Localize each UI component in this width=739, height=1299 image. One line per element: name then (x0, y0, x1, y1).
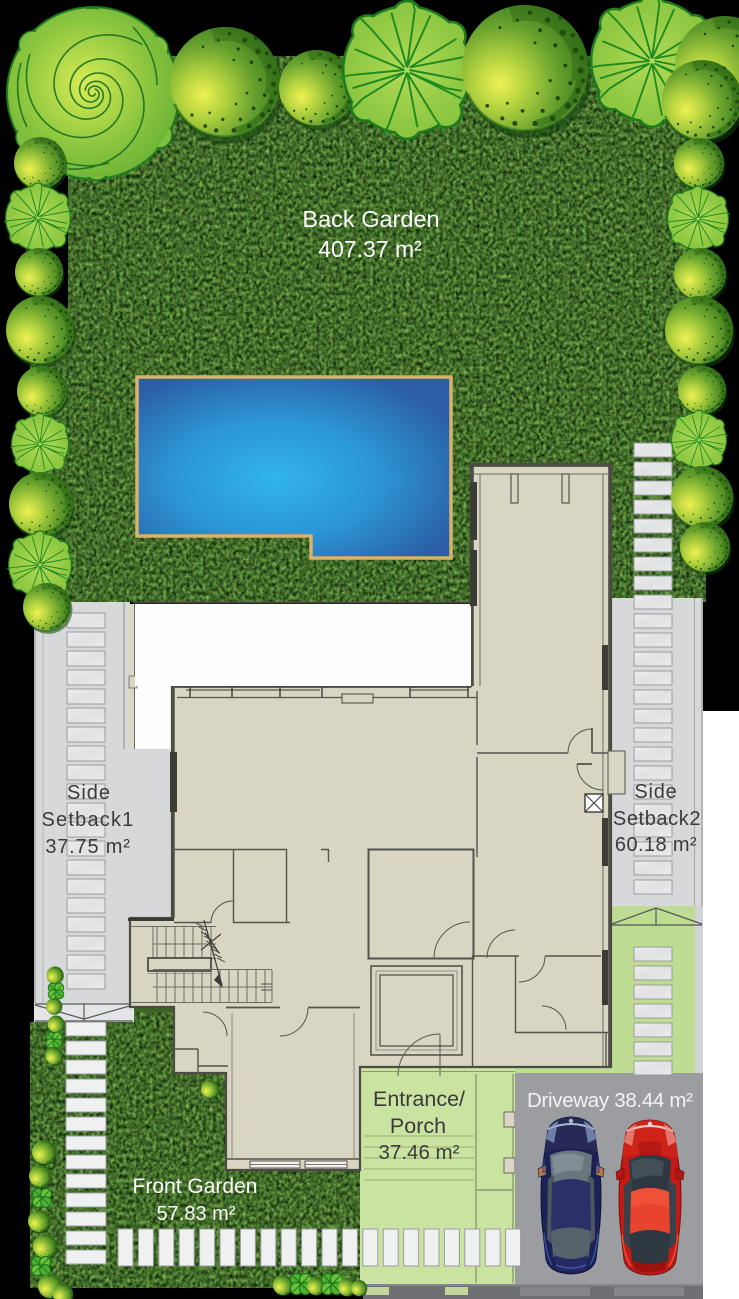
svg-text:Front Garden: Front Garden (133, 1175, 258, 1198)
svg-text:Porch: Porch (390, 1114, 446, 1138)
svg-text:Side: Side (67, 782, 111, 804)
svg-text:Driveway 38.44 m²: Driveway 38.44 m² (527, 1089, 693, 1112)
svg-text:57.83 m²: 57.83 m² (157, 1203, 236, 1225)
svg-text:Back Garden: Back Garden (302, 206, 439, 232)
svg-text:60.18 m²: 60.18 m² (615, 834, 697, 856)
svg-text:Setback2: Setback2 (613, 808, 701, 830)
svg-text:37.75 m²: 37.75 m² (45, 836, 130, 858)
svg-text:Side: Side (634, 781, 677, 803)
svg-text:37.46 m²: 37.46 m² (379, 1141, 460, 1164)
svg-text:Setback1: Setback1 (42, 809, 135, 831)
svg-text:407.37 m²: 407.37 m² (318, 236, 422, 262)
svg-text:Entrance/: Entrance/ (373, 1087, 465, 1111)
